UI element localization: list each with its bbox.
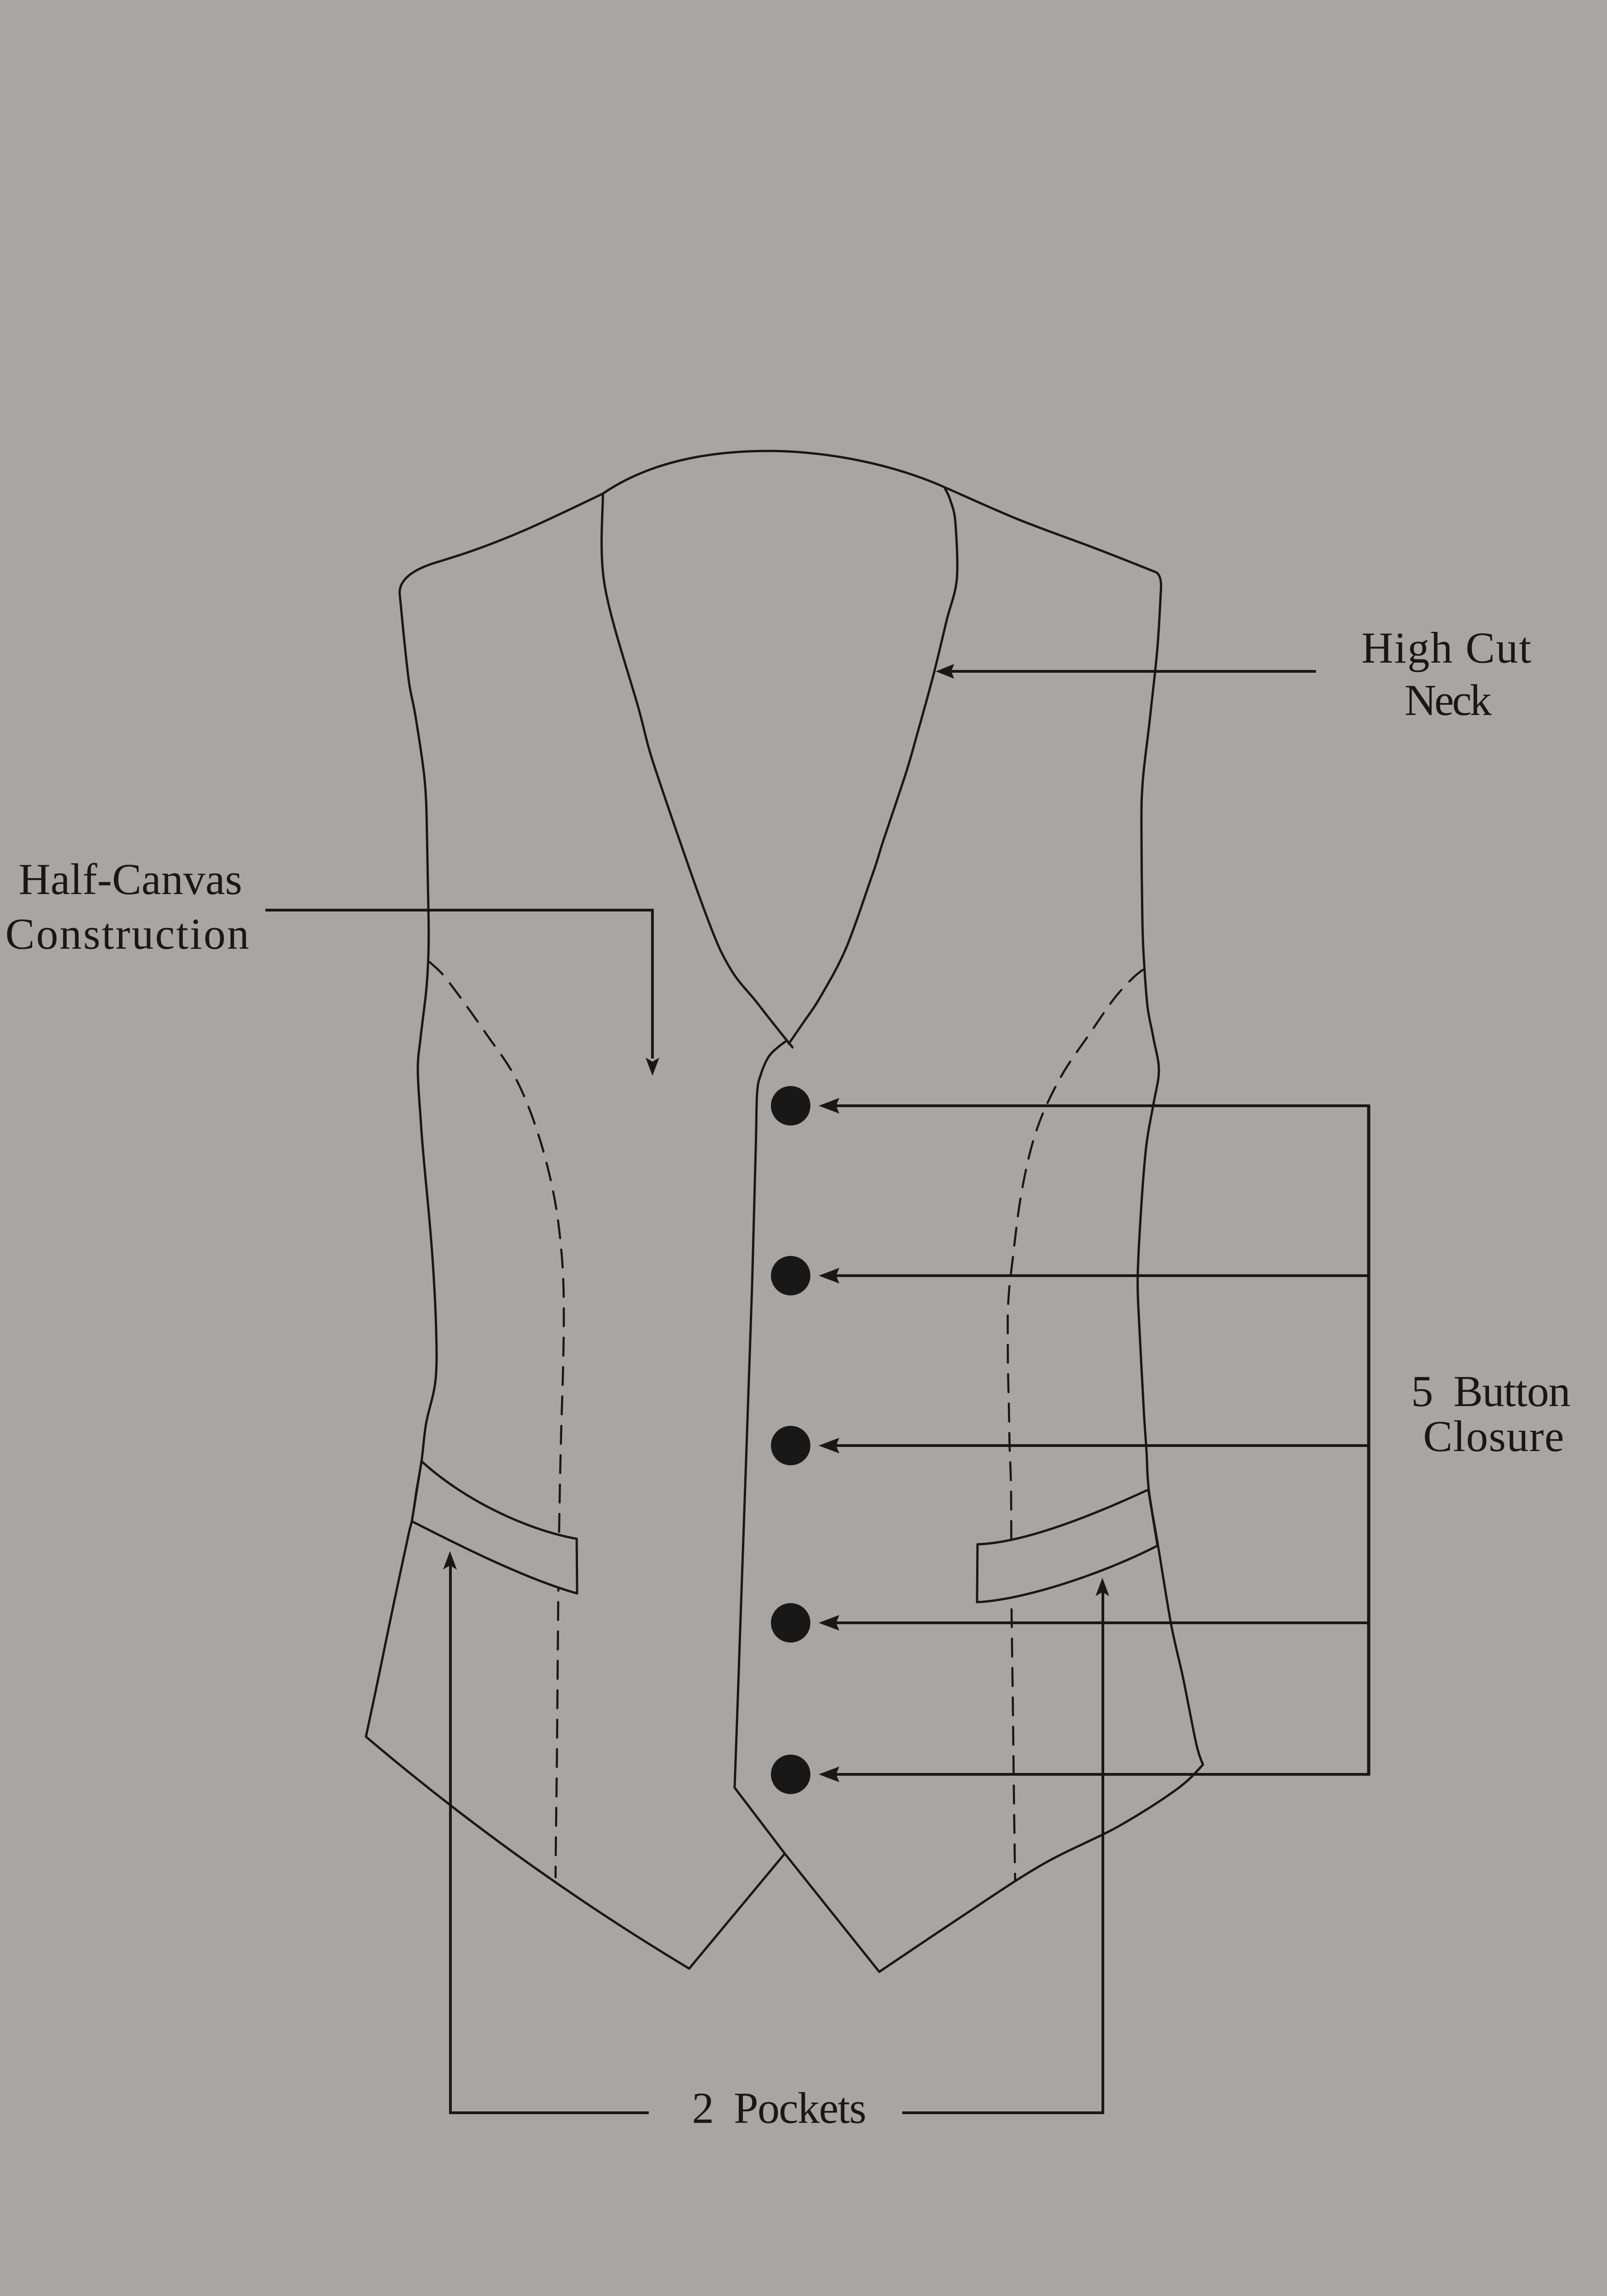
svg-text:2 Pockets: 2 Pockets — [692, 2083, 866, 2133]
svg-text:Neck: Neck — [1405, 675, 1492, 725]
svg-text:5 Button: 5 Button — [1411, 1367, 1571, 1416]
svg-text:Closure: Closure — [1423, 1412, 1564, 1461]
svg-text:Half-Canvas: Half-Canvas — [19, 855, 242, 904]
svg-text:High Cut: High Cut — [1361, 623, 1531, 672]
svg-text:Construction: Construction — [6, 909, 249, 958]
